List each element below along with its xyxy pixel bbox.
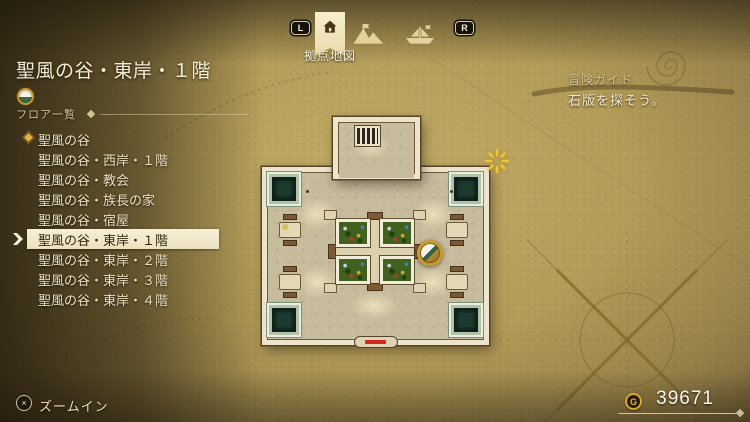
selected-tab-label: 拠点地図 [270, 47, 390, 64]
table-with-chairs [446, 266, 468, 298]
wall-detail-dot [306, 190, 309, 193]
floor-label: 聖風の谷・族長の家 [38, 190, 155, 209]
flower-planter [380, 256, 414, 284]
corner-pool [449, 303, 483, 337]
currency-amount: 39671 [622, 388, 714, 410]
floor-label: 聖風の谷 [38, 130, 90, 149]
floor-label: 聖風の谷・東岸・３階 [38, 270, 168, 289]
corner-pool [449, 172, 483, 206]
r-shoulder-button[interactable]: R [455, 21, 474, 35]
table-with-chairs [279, 214, 301, 246]
floor-list: 聖風の谷 聖風の谷・西岸・１階 聖風の谷・教会 聖風の谷・族長の家 聖風の谷・宿… [27, 129, 219, 309]
floor-label: 聖風の谷・東岸・１階 [38, 230, 168, 249]
adventure-guide-text: 石版を探そう。 [568, 90, 665, 109]
game-map-screen: L R 拠点地図 聖風の谷・東岸・１階 フロア一覧 聖風の谷 [0, 0, 750, 422]
floor-list-item[interactable]: 聖風の谷 [27, 129, 219, 149]
current-floor-emblem-icon [17, 88, 34, 105]
floor-label: 聖風の谷・宿屋 [38, 210, 129, 229]
current-position-compass-icon [417, 240, 443, 266]
currency-underline [618, 413, 740, 414]
floor-list-item[interactable]: 聖風の谷・族長の家 [27, 189, 219, 209]
flower-planter [336, 219, 370, 247]
page-title: 聖風の谷・東岸・１階 [16, 56, 211, 83]
floor-list-item[interactable]: 聖風の谷・東岸・３階 [27, 269, 219, 289]
wall-detail-dot [450, 190, 453, 193]
floor-list-item[interactable]: 聖風の谷・東岸・４階 [27, 289, 219, 309]
table-with-chairs [279, 266, 301, 298]
floor-label: 聖風の谷・東岸・４階 [38, 290, 168, 309]
floor-list-item[interactable]: 聖風の谷・西岸・１階 [27, 149, 219, 169]
heading-divider-line [100, 114, 248, 115]
floor-list-heading: フロア一覧 [16, 106, 76, 122]
mountain-camp-icon [354, 24, 383, 44]
floor-label: 聖風の谷・西岸・１階 [38, 150, 168, 169]
flower-planter [336, 256, 370, 284]
room-junction [339, 166, 414, 178]
objective-sparkle-icon [483, 147, 511, 175]
floor-list-item[interactable]: 聖風の谷・教会 [27, 169, 219, 189]
l-shoulder-button[interactable]: L [291, 21, 310, 35]
tab-world-map[interactable] [402, 24, 438, 45]
house-icon [322, 19, 338, 35]
flower-planter [380, 219, 414, 247]
x-button-icon[interactable]: × [16, 395, 32, 411]
tab-area-map[interactable] [351, 24, 387, 45]
ship-icon [406, 25, 434, 43]
red-exit-door-marker [354, 336, 398, 348]
corner-pool [267, 303, 301, 337]
zoom-in-hint-label: ズームイン [39, 396, 109, 415]
corner-pool [267, 172, 301, 206]
floor-label: 聖風の谷・東岸・２階 [38, 250, 168, 269]
floor-list-item-selected[interactable]: 聖風の谷・東岸・１階 [27, 229, 219, 249]
floor-label: 聖風の谷・教会 [38, 170, 129, 189]
central-garden-planters [336, 219, 414, 284]
floor-list-item[interactable]: 聖風の谷・東岸・２階 [27, 249, 219, 269]
table-with-chairs [446, 214, 468, 246]
floor-list-item[interactable]: 聖風の谷・宿屋 [27, 209, 219, 229]
barred-gate-icon [357, 128, 378, 144]
adventure-guide-heading: 冒険ガイド [568, 71, 633, 88]
